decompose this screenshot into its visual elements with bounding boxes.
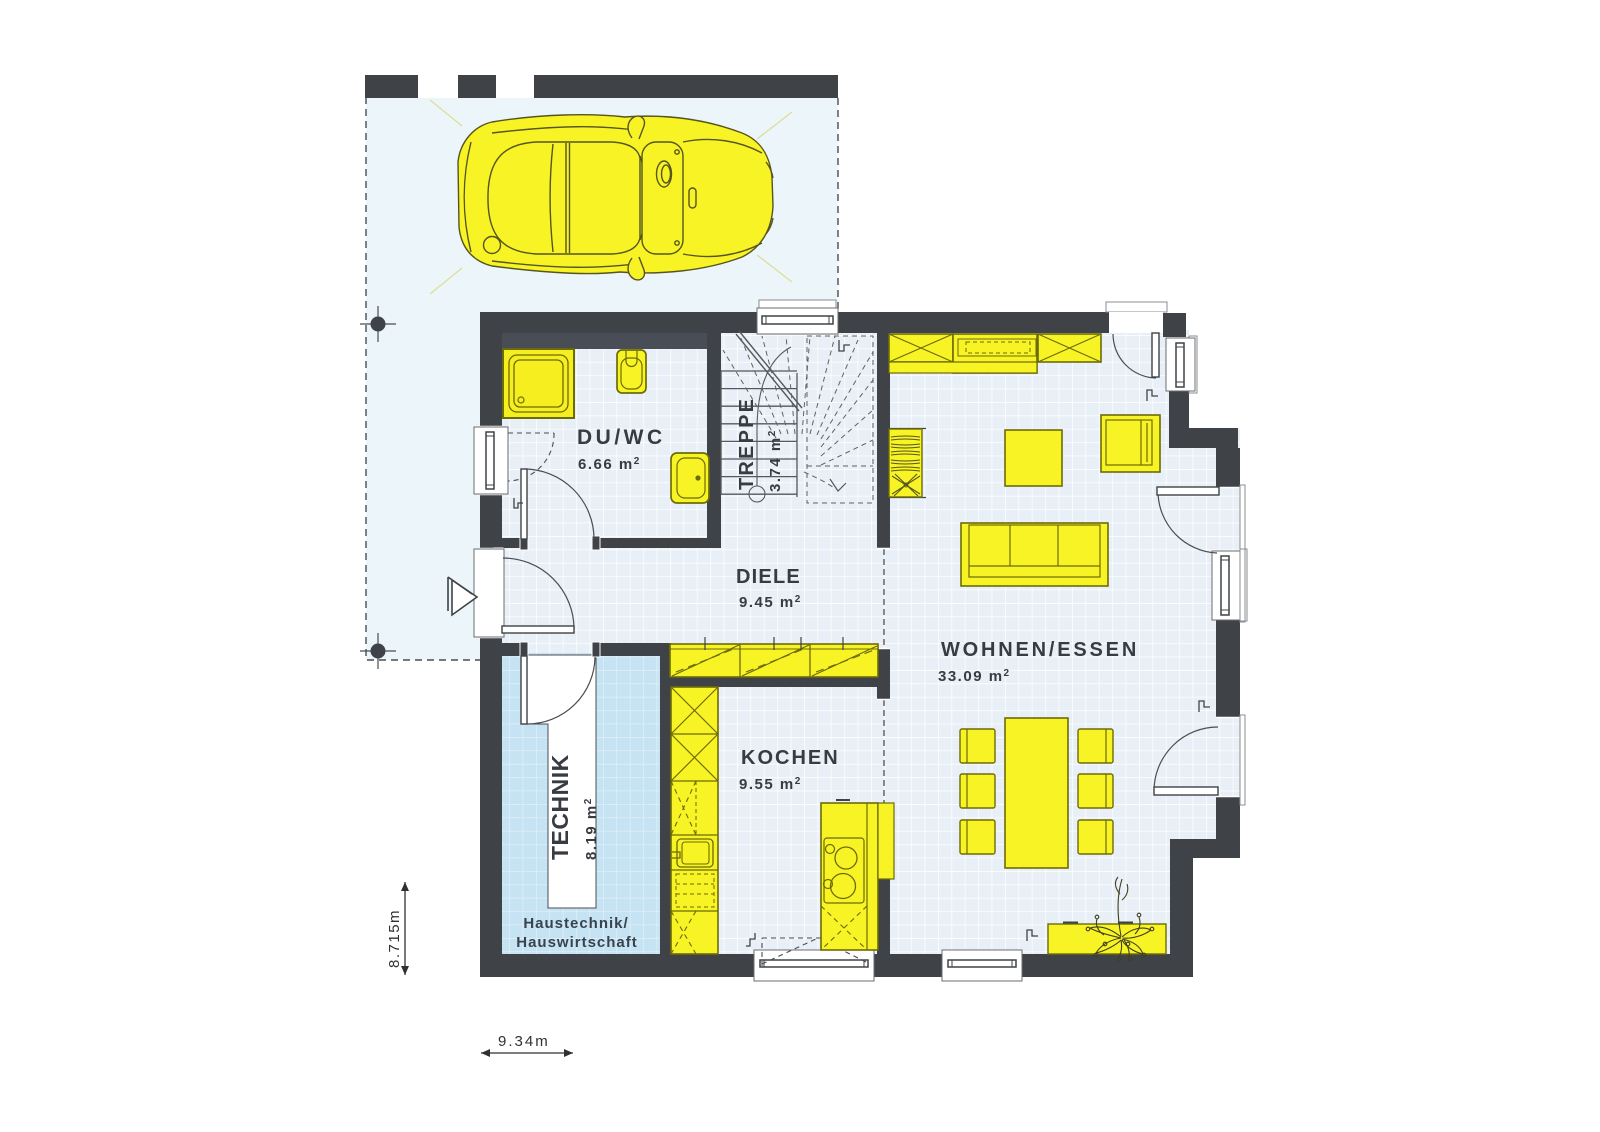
svg-text:33.09 m2: 33.09 m2 xyxy=(938,668,1011,685)
svg-text:DIELE: DIELE xyxy=(736,566,801,588)
svg-text:8.19 m2: 8.19 m2 xyxy=(583,797,600,860)
svg-text:8.715m: 8.715m xyxy=(386,909,403,968)
svg-text:9.55 m2: 9.55 m2 xyxy=(739,776,802,793)
svg-text:WOHNEN/ESSEN: WOHNEN/ESSEN xyxy=(941,639,1139,661)
svg-text:TECHNIK: TECHNIK xyxy=(547,754,573,860)
svg-text:Haustechnik/: Haustechnik/ xyxy=(523,915,628,932)
svg-text:KOCHEN: KOCHEN xyxy=(741,747,840,769)
svg-text:Hauswirtschaft: Hauswirtschaft xyxy=(516,934,638,951)
svg-text:DU/WC: DU/WC xyxy=(577,426,666,449)
svg-text:9.45 m2: 9.45 m2 xyxy=(739,594,802,611)
svg-text:9.34m: 9.34m xyxy=(498,1033,550,1050)
svg-text:6.66 m2: 6.66 m2 xyxy=(578,456,641,473)
svg-text:3.74 m2: 3.74 m2 xyxy=(767,429,784,492)
svg-text:TREPPE: TREPPE xyxy=(736,397,758,490)
